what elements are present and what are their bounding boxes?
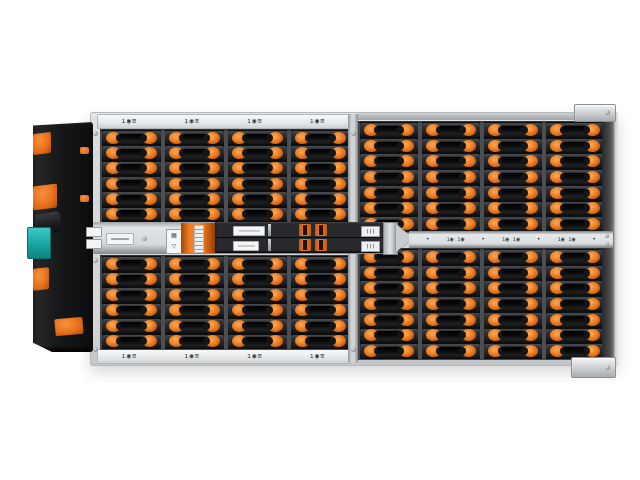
drive-bay [360, 297, 418, 311]
drive-bay [102, 335, 161, 349]
drive-bay [291, 131, 350, 144]
drive-bay [360, 266, 418, 280]
drive-bay [291, 257, 350, 271]
drive-bay [291, 208, 350, 221]
drive-bay [291, 177, 350, 190]
drive-bay [228, 335, 287, 349]
drive-column [291, 256, 350, 349]
drive-bay [360, 139, 418, 153]
drive-bay [165, 162, 224, 175]
drive-grid-right-bottom [358, 248, 606, 360]
drive-bay [291, 273, 350, 287]
drive-bay [546, 297, 604, 311]
drive-latch-right-icon [461, 329, 476, 341]
drive-bay [291, 162, 350, 175]
drive-bay [102, 288, 161, 302]
drive-latch-right-icon [399, 187, 414, 199]
drive-latch-right-icon [205, 335, 220, 347]
drive-latch-right-icon [205, 178, 220, 190]
drive-latch-right-icon [205, 273, 220, 285]
drive-bay [228, 273, 287, 287]
drive-latch-right-icon [523, 298, 538, 310]
drive-latch-right-icon [399, 329, 414, 341]
drive-latch-right-icon [523, 345, 538, 357]
drive-latch-right-icon [399, 171, 414, 183]
drive-column [165, 256, 224, 349]
drive-latch-right-icon [142, 147, 157, 159]
drive-latch-right-icon [331, 178, 346, 190]
drive-bay [102, 177, 161, 190]
drive-latch-right-icon [268, 335, 283, 347]
drive-bay [546, 139, 604, 153]
drive-latch-right-icon [142, 208, 157, 220]
drive-latch-right-icon [268, 178, 283, 190]
drive-latch-right-icon [523, 155, 538, 167]
drive-bay [546, 154, 604, 168]
drive-latch-right-icon [585, 329, 600, 341]
drive-latch-right-icon [461, 155, 476, 167]
drive-column [546, 122, 604, 232]
drive-latch-right-icon [268, 132, 283, 144]
drive-latch-right-icon [331, 304, 346, 316]
drive-bay [546, 266, 604, 280]
drive-bay [360, 344, 418, 358]
rail-icon: ı◉≡ [122, 353, 138, 360]
drive-bay [102, 257, 161, 271]
drive-latch-right-icon [585, 140, 600, 152]
drive-latch-right-icon [461, 202, 476, 214]
drive-bay [422, 344, 480, 358]
panel-clip-icon [54, 317, 83, 336]
panel-clip-icon [33, 184, 57, 211]
drive-latch-right-icon [523, 218, 538, 230]
rail-icon: ı◉≡ [310, 353, 326, 360]
drive-latch-right-icon [399, 282, 414, 294]
drive-bay [546, 281, 604, 295]
drive-latch-right-icon [399, 124, 414, 136]
screw-icon [605, 365, 610, 370]
screw-icon [605, 234, 609, 238]
drive-latch-right-icon [585, 171, 600, 183]
panel-marker-icon [80, 147, 89, 154]
drive-latch-right-icon [399, 155, 414, 167]
panel-clip-icon [33, 132, 51, 155]
module-clip-icon [299, 239, 311, 251]
drive-latch-right-icon [585, 298, 600, 310]
module-divider-mark [268, 239, 271, 251]
drive-latch-right-icon [205, 289, 220, 301]
drive-latch-right-icon [461, 171, 476, 183]
drive-bay [102, 146, 161, 159]
drive-bay [484, 250, 542, 264]
rail-icon: ı◉≡ [310, 118, 326, 125]
drive-bay [484, 170, 542, 184]
drive-latch-right-icon [268, 147, 283, 159]
drive-column [102, 256, 161, 349]
label-tab [86, 239, 102, 249]
module-port-sticker [361, 241, 380, 252]
drive-latch-right-icon [523, 329, 538, 341]
drive-bay [228, 304, 287, 318]
drive-latch-right-icon [331, 320, 346, 332]
drive-bay [291, 304, 350, 318]
drive-bay [484, 139, 542, 153]
panel-clip-icon [33, 267, 49, 291]
drive-latch-right-icon [461, 345, 476, 357]
drive-latch-right-icon [205, 258, 220, 270]
drive-bay [360, 281, 418, 295]
drive-latch-right-icon [331, 162, 346, 174]
drive-bay [422, 281, 480, 295]
drive-latch-right-icon [142, 178, 157, 190]
drive-latch-right-icon [331, 132, 346, 144]
panel-marker-icon [80, 195, 89, 202]
drive-latch-right-icon [461, 267, 476, 279]
drive-latch-right-icon [205, 208, 220, 220]
drive-latch-right-icon [142, 132, 157, 144]
drive-column [360, 249, 418, 359]
screw-icon [605, 110, 610, 115]
drive-bay [484, 281, 542, 295]
drive-bay [484, 217, 542, 231]
drive-bay [546, 217, 604, 231]
drive-bay [484, 297, 542, 311]
drive-latch-right-icon [142, 335, 157, 347]
drive-bay [102, 162, 161, 175]
drive-bay [102, 131, 161, 144]
drive-latch-right-icon [268, 193, 283, 205]
drive-column [165, 130, 224, 222]
drive-latch-right-icon [331, 273, 346, 285]
drive-bay [291, 335, 350, 349]
drive-latch-right-icon [523, 140, 538, 152]
drive-latch-right-icon [331, 193, 346, 205]
rail-icon: • [537, 237, 541, 243]
drive-bay [228, 288, 287, 302]
drive-latch-right-icon [399, 202, 414, 214]
drive-latch-right-icon [268, 273, 283, 285]
drive-bay [422, 250, 480, 264]
drive-bay [484, 266, 542, 280]
drive-bay [165, 257, 224, 271]
drive-column [228, 130, 287, 222]
drive-latch-right-icon [142, 304, 157, 316]
drive-latch-right-icon [461, 124, 476, 136]
drive-bay [546, 313, 604, 327]
drive-latch-right-icon [585, 155, 600, 167]
drive-latch-right-icon [585, 187, 600, 199]
drive-latch-right-icon [585, 345, 600, 357]
drive-bay [228, 177, 287, 190]
drive-bay [228, 208, 287, 221]
drive-bay [291, 192, 350, 205]
screw-icon [605, 242, 609, 246]
drive-bay [291, 146, 350, 159]
drive-bay [291, 319, 350, 333]
drive-bay [228, 146, 287, 159]
drive-latch-right-icon [399, 140, 414, 152]
drive-latch-right-icon [461, 251, 476, 263]
drive-bay [165, 177, 224, 190]
screw-icon [351, 347, 356, 352]
drive-bay [360, 329, 418, 343]
rail-icon: • [481, 237, 485, 243]
drive-bay [546, 123, 604, 137]
drive-bay [422, 266, 480, 280]
drive-latch-right-icon [523, 282, 538, 294]
drive-column [422, 249, 480, 359]
drive-latch-right-icon [585, 251, 600, 263]
drive-bay [546, 250, 604, 264]
triangle-icon: ▽ [172, 244, 177, 250]
drive-latch-right-icon [585, 202, 600, 214]
drive-latch-right-icon [142, 289, 157, 301]
rail-icon: ı◉ ı◉ [557, 237, 575, 243]
drive-latch-right-icon [399, 267, 414, 279]
drive-grid-right-top [358, 121, 606, 233]
drive-bay [102, 319, 161, 333]
screw-icon [93, 258, 98, 263]
drive-bay [165, 288, 224, 302]
drive-latch-right-icon [268, 304, 283, 316]
drive-bay [228, 319, 287, 333]
drive-column [422, 122, 480, 232]
drive-bay [484, 186, 542, 200]
drive-latch-right-icon [331, 289, 346, 301]
drive-latch-right-icon [205, 320, 220, 332]
drive-latch-right-icon [142, 273, 157, 285]
drive-bay [422, 329, 480, 343]
drive-bay [546, 186, 604, 200]
drive-latch-right-icon [142, 162, 157, 174]
drive-column [484, 122, 542, 232]
drive-latch-right-icon [205, 132, 220, 144]
drive-bay [484, 344, 542, 358]
drive-bay [546, 202, 604, 216]
label-tab [86, 227, 102, 237]
module-clip-icon [315, 224, 327, 236]
drive-bay [291, 288, 350, 302]
drive-latch-right-icon [142, 320, 157, 332]
drive-bay [360, 186, 418, 200]
module-sticker [233, 241, 259, 251]
drive-latch-right-icon [331, 208, 346, 220]
drive-grid-left-top [100, 129, 352, 223]
drive-bay [546, 344, 604, 358]
top-bay-rail: ı◉≡ı◉≡ı◉≡ı◉≡ [97, 114, 350, 129]
drive-column [546, 249, 604, 359]
drive-bay [422, 123, 480, 137]
drive-latch-right-icon [585, 314, 600, 326]
drive-column [228, 256, 287, 349]
drive-bay [165, 319, 224, 333]
drive-bay [546, 329, 604, 343]
module-sticker [233, 226, 265, 236]
io-module-handle [181, 223, 215, 253]
drive-latch-right-icon [268, 289, 283, 301]
drive-bay [228, 257, 287, 271]
drive-bay [360, 202, 418, 216]
screw-icon [142, 236, 147, 241]
rail-icon: • [426, 237, 430, 243]
drive-latch-right-icon [205, 304, 220, 316]
drive-latch-right-icon [523, 202, 538, 214]
rail-sticker [106, 233, 134, 245]
drive-bay [422, 313, 480, 327]
drive-latch-right-icon [461, 314, 476, 326]
product-photo-storage-enclosure: ı◉≡ı◉≡ı◉≡ı◉≡ ı◉≡ı◉≡ı◉≡ı◉≡ ▦ ▽ [0, 0, 640, 480]
drive-latch-right-icon [268, 162, 283, 174]
drive-bay [484, 329, 542, 343]
drive-bay [228, 131, 287, 144]
rail-icon: ı◉≡ [247, 118, 263, 125]
caution-icon-box: ▦ ▽ [166, 229, 182, 254]
drive-bay [102, 273, 161, 287]
drive-latch-right-icon [399, 298, 414, 310]
sas-cable-connector [27, 227, 51, 259]
rail-icon: ı◉ ı◉ [502, 237, 520, 243]
drive-column [360, 122, 418, 232]
drive-latch-right-icon [205, 162, 220, 174]
drive-latch-right-icon [461, 298, 476, 310]
drive-latch-right-icon [585, 267, 600, 279]
drive-bay [422, 154, 480, 168]
rail-icon: • [592, 237, 596, 243]
bottom-bay-rail: ı◉≡ı◉≡ı◉≡ı◉≡ [97, 349, 350, 364]
drive-bay [102, 192, 161, 205]
drive-latch-right-icon [268, 258, 283, 270]
drive-latch-right-icon [331, 147, 346, 159]
screw-icon [351, 131, 356, 136]
screw-icon [93, 131, 98, 136]
drive-bay [165, 335, 224, 349]
drive-bay [165, 192, 224, 205]
drive-latch-right-icon [142, 258, 157, 270]
drive-latch-right-icon [461, 187, 476, 199]
io-module-stack [215, 222, 396, 253]
drive-latch-right-icon [399, 345, 414, 357]
drive-latch-right-icon [523, 314, 538, 326]
drive-latch-right-icon [399, 314, 414, 326]
drive-latch-right-icon [523, 267, 538, 279]
drive-bay [228, 162, 287, 175]
drive-latch-right-icon [523, 251, 538, 263]
drive-column [291, 130, 350, 222]
drive-grid-left-bottom [100, 255, 352, 350]
module-divider-mark [268, 224, 271, 236]
module-clip-icon [315, 239, 327, 251]
rail-icon: ı◉≡ [122, 118, 138, 125]
drive-latch-right-icon [268, 208, 283, 220]
drive-bay [546, 170, 604, 184]
drive-latch-right-icon [205, 193, 220, 205]
grid-icon: ▦ [171, 233, 177, 239]
drive-bay [360, 313, 418, 327]
drive-latch-right-icon [585, 282, 600, 294]
drive-bay [422, 170, 480, 184]
drive-latch-right-icon [523, 171, 538, 183]
rail-icon: ı◉ ı◉ [446, 237, 464, 243]
drive-bay [102, 208, 161, 221]
right-mid-rail: •ı◉ ı◉•ı◉ ı◉•ı◉ ı◉• [409, 231, 613, 248]
drive-column [102, 130, 161, 222]
drive-bay [165, 304, 224, 318]
drive-latch-right-icon [268, 320, 283, 332]
drive-column [484, 249, 542, 359]
drive-bay [102, 304, 161, 318]
handle-label-strip [194, 225, 204, 253]
drive-bay [422, 186, 480, 200]
drive-bay [165, 273, 224, 287]
drive-bay [422, 217, 480, 231]
drive-latch-right-icon [585, 124, 600, 136]
drive-latch-right-icon [205, 147, 220, 159]
drive-bay [484, 202, 542, 216]
rail-icon: ı◉≡ [184, 118, 200, 125]
drive-bay [165, 146, 224, 159]
drive-bay [422, 297, 480, 311]
drive-latch-right-icon [585, 218, 600, 230]
drive-bay [360, 170, 418, 184]
rail-icon: ı◉≡ [184, 353, 200, 360]
right-bank-top-edge [358, 113, 604, 120]
drive-latch-right-icon [461, 218, 476, 230]
drive-latch-right-icon [331, 335, 346, 347]
drive-latch-right-icon [461, 282, 476, 294]
drive-latch-right-icon [331, 258, 346, 270]
drive-latch-right-icon [523, 187, 538, 199]
module-clip-icon [299, 224, 311, 236]
drive-bay [484, 154, 542, 168]
rack-bracket-top-right [574, 104, 616, 122]
rack-bracket-bottom-right [571, 357, 616, 378]
rail-icon: ı◉≡ [247, 353, 263, 360]
drive-bay [484, 123, 542, 137]
module-port-sticker [361, 226, 380, 237]
drive-latch-right-icon [399, 251, 414, 263]
drive-latch-right-icon [461, 140, 476, 152]
drive-bay [422, 139, 480, 153]
drive-bay [228, 192, 287, 205]
drive-latch-right-icon [142, 193, 157, 205]
drive-bay [422, 202, 480, 216]
drive-bay [360, 154, 418, 168]
drive-bay [360, 123, 418, 137]
drive-bay [484, 313, 542, 327]
drive-latch-right-icon [523, 124, 538, 136]
drive-bay [165, 131, 224, 144]
drive-bay [165, 208, 224, 221]
